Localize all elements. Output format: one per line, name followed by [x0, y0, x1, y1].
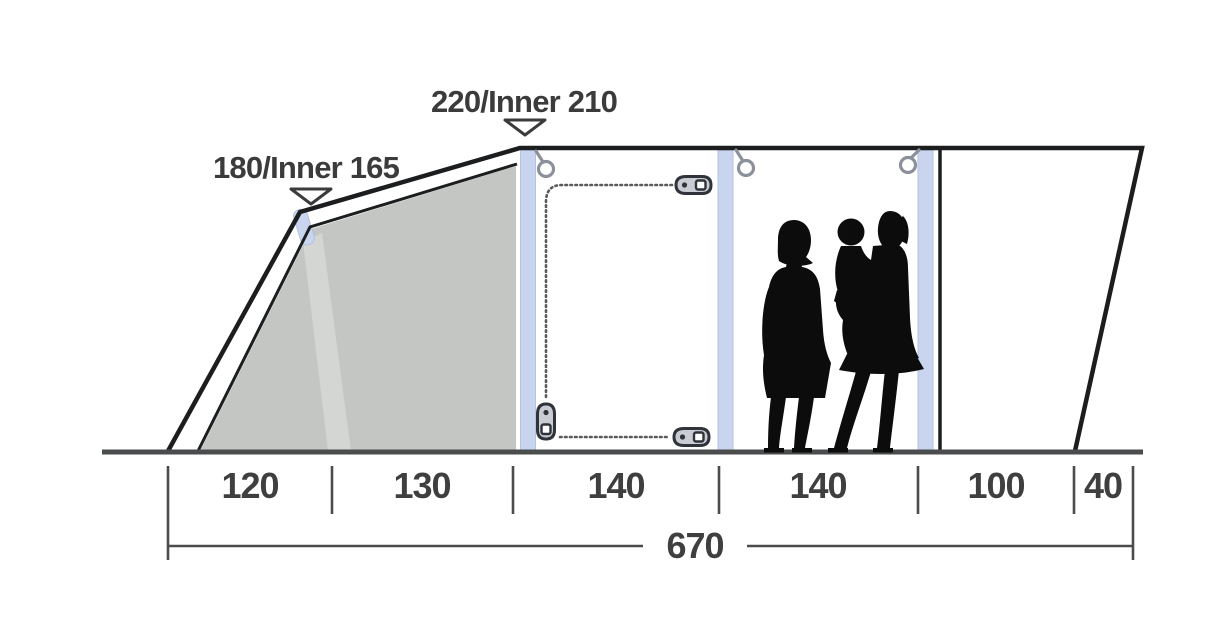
air-pole-front	[521, 150, 536, 451]
dimension-label: 140	[587, 465, 644, 506]
height-label-front: 180/Inner 165	[213, 150, 400, 185]
ground-line	[102, 450, 1143, 455]
tent-dimension-diagram: 180/Inner 165 220/Inner 210 120 130 140 …	[0, 0, 1230, 628]
dimension-label: 120	[221, 465, 278, 506]
dimension-labels: 120 130 140 140 100 40	[221, 465, 1122, 506]
zipper-slider-icon	[538, 404, 555, 439]
hanging-ring-icon	[736, 150, 754, 176]
adult-holding-child-silhouette	[828, 211, 924, 453]
total-dimension: 670	[168, 525, 1133, 566]
air-pole-middle	[718, 150, 733, 451]
triangle-down-marker-icon	[505, 120, 545, 135]
diagram-canvas: 180/Inner 165 220/Inner 210 120 130 140 …	[0, 0, 1230, 628]
height-label-peak: 220/Inner 210	[431, 84, 617, 119]
zipper-slider-icon	[676, 177, 711, 194]
dimension-label: 40	[1084, 465, 1122, 506]
adult-silhouette	[762, 220, 831, 453]
hanging-ring-icon	[901, 150, 920, 173]
dimension-label: 100	[967, 465, 1024, 506]
air-pole-rear	[918, 150, 933, 451]
zipper-slider-icon	[674, 429, 709, 446]
hanging-ring-icon	[536, 151, 554, 177]
triangle-down-marker-icon	[291, 189, 331, 204]
zipper-door	[538, 177, 712, 446]
people-silhouettes	[762, 211, 924, 453]
zipper-door-path	[546, 185, 672, 398]
total-dimension-label: 670	[666, 525, 723, 566]
dimension-label: 140	[789, 465, 846, 506]
dimension-label: 130	[393, 465, 450, 506]
